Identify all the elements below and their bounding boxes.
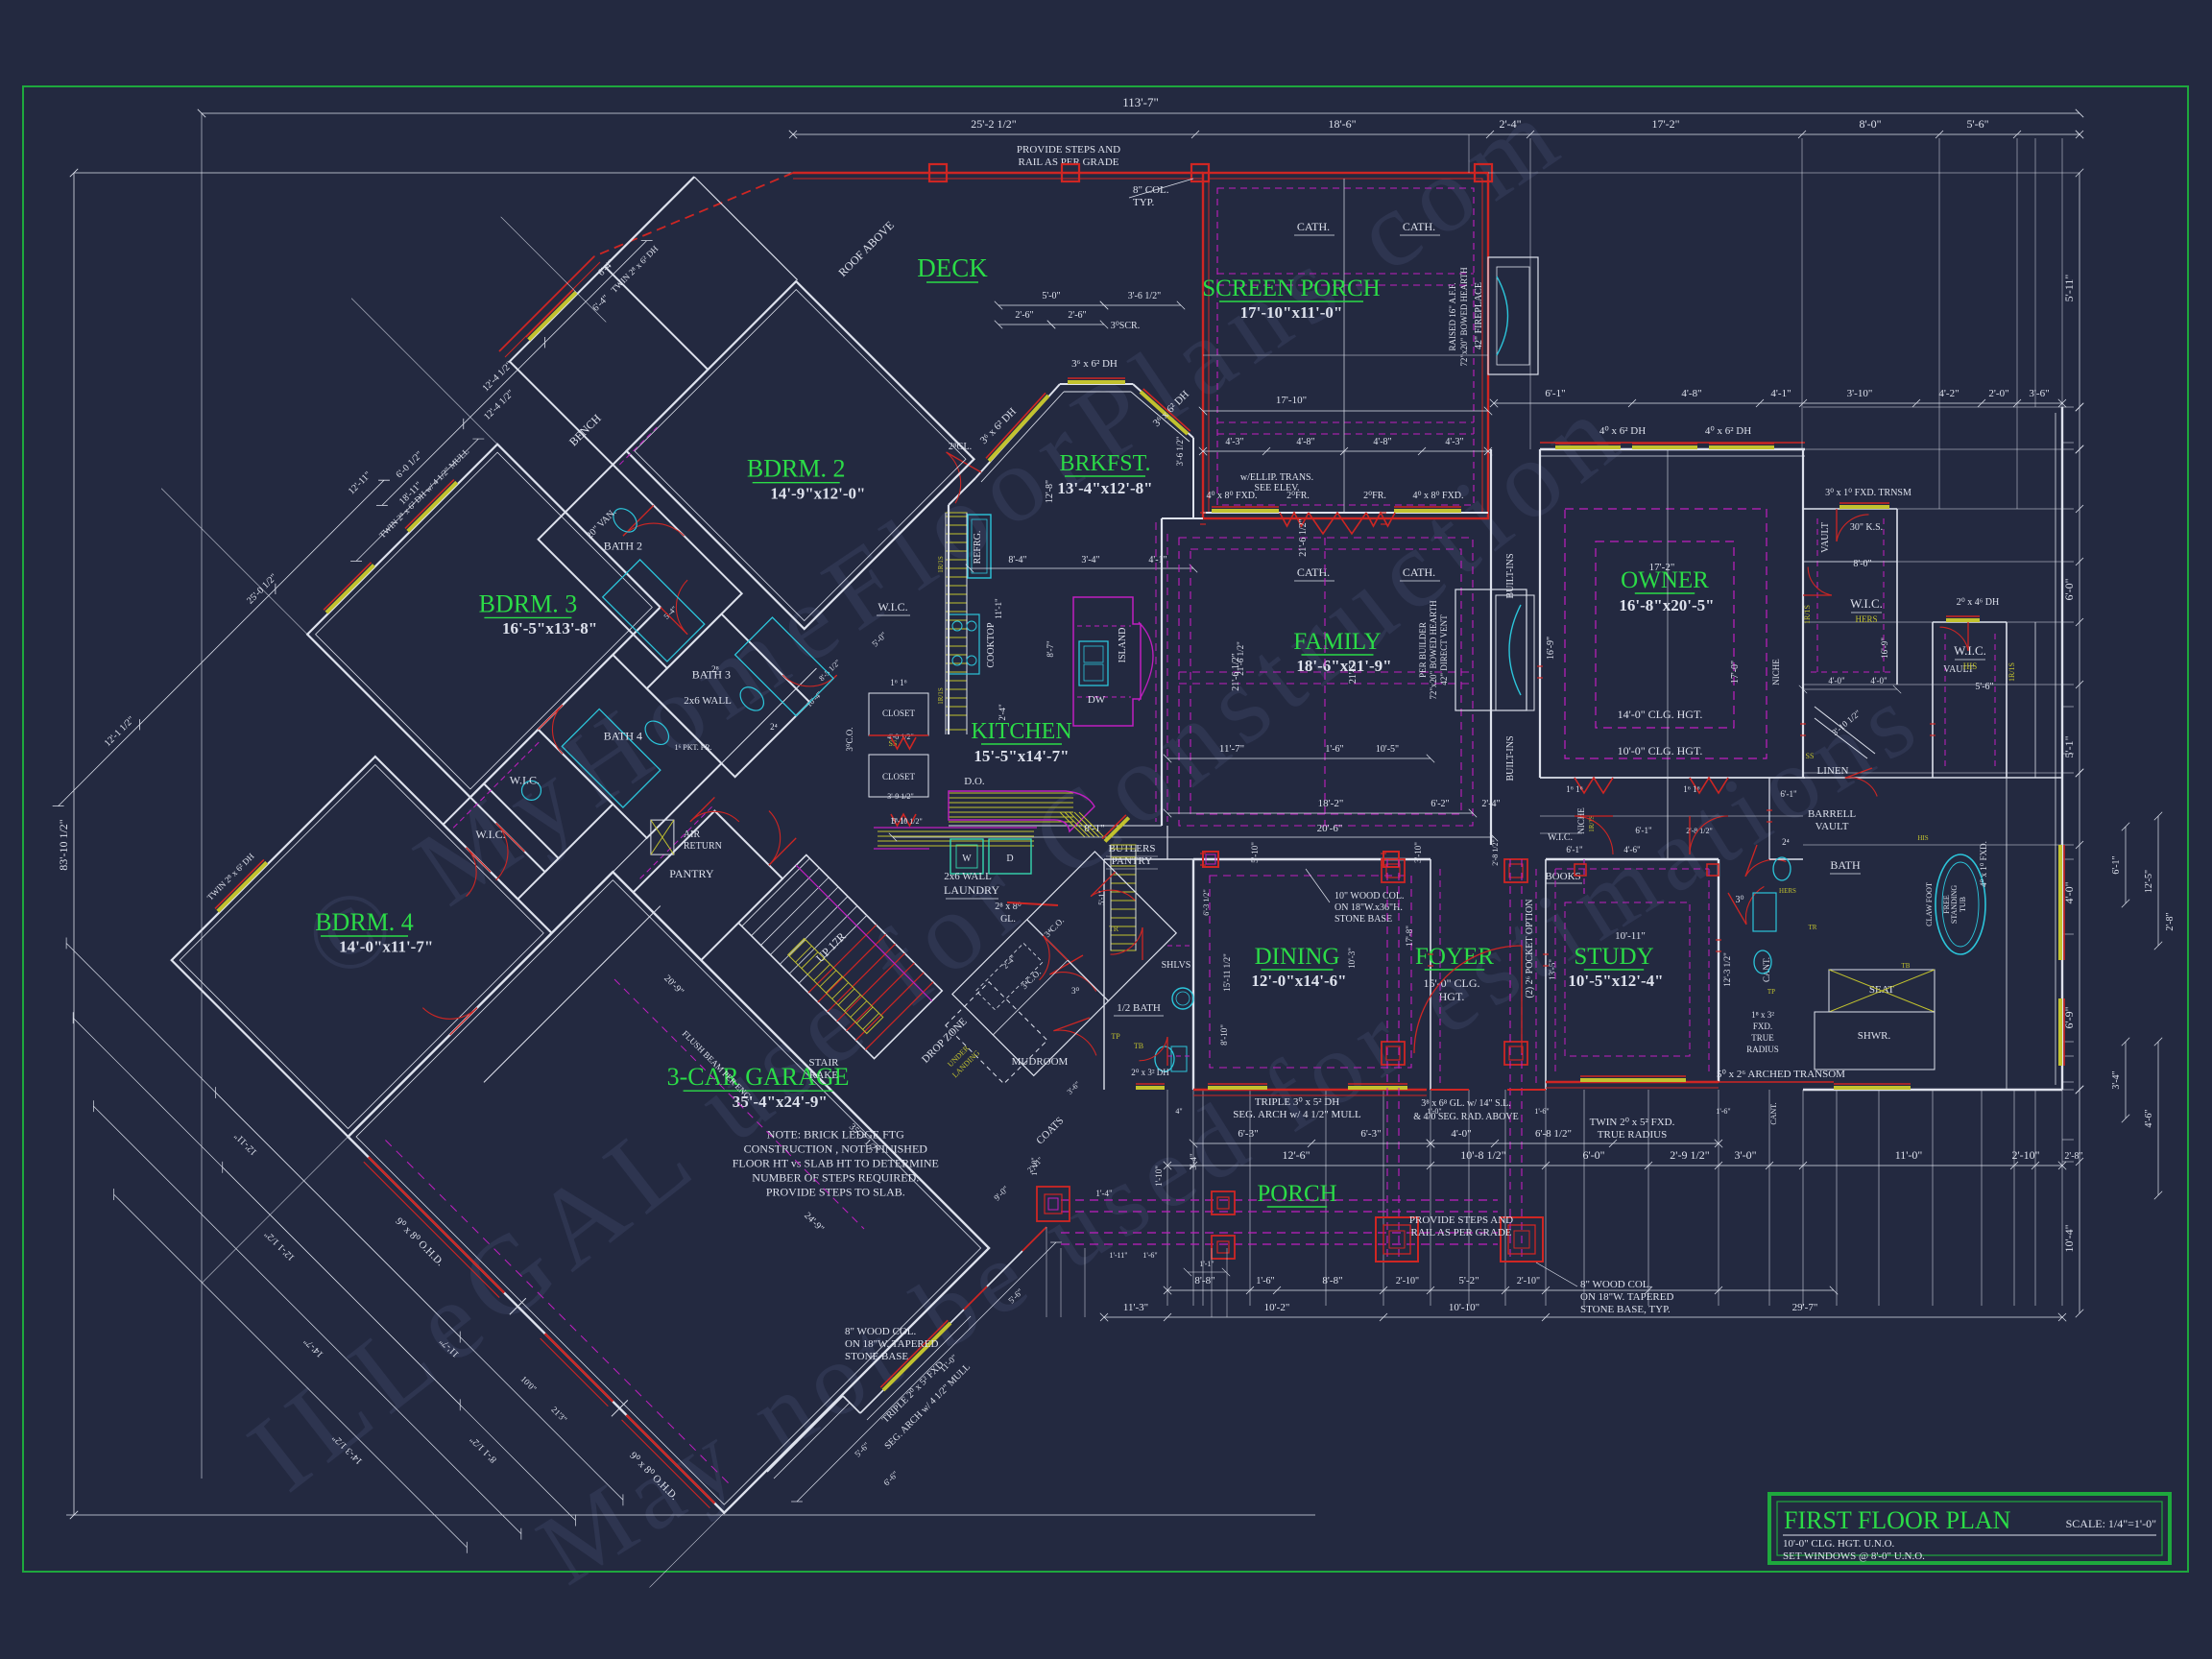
svg-text:4'-0": 4'-0" [1828, 676, 1845, 685]
svg-text:1'-6": 1'-6" [1716, 1107, 1730, 1116]
svg-text:1'-10": 1'-10" [1154, 1166, 1164, 1187]
svg-text:17'-2": 17'-2" [1649, 562, 1675, 573]
svg-text:SET WINDOWS @ 8'-0" U.N.O.: SET WINDOWS @ 8'-0" U.N.O. [1783, 1551, 1925, 1562]
svg-text:1R/1S: 1R/1S [937, 556, 945, 573]
svg-text:113'-7": 113'-7" [1122, 95, 1159, 109]
svg-text:FLOOR HT vs SLAB HT TO DETERMI: FLOOR HT vs SLAB HT TO DETERMINE [733, 1156, 939, 1169]
svg-text:ON 18"W. TAPERED: ON 18"W. TAPERED [845, 1338, 938, 1350]
svg-text:3'-6 1/2": 3'-6 1/2" [1175, 436, 1185, 466]
svg-text:17'-8": 17'-8" [1405, 926, 1414, 947]
svg-text:2x6 WALL: 2x6 WALL [684, 695, 732, 707]
svg-text:10'-5"x12'-4": 10'-5"x12'-4" [1568, 972, 1663, 990]
svg-text:KITCHEN: KITCHEN [971, 719, 1071, 744]
svg-text:PORCH: PORCH [1257, 1181, 1336, 1207]
svg-text:3'-4": 3'-4" [1081, 555, 1099, 565]
svg-text:4'-6": 4'-6" [2144, 1109, 2154, 1127]
svg-text:1R/1S: 1R/1S [937, 687, 945, 705]
svg-text:3'-10": 3'-10" [1847, 388, 1873, 399]
svg-text:ON 18"W.x36"H.: ON 18"W.x36"H. [1334, 902, 1403, 913]
svg-text:BDRM. 2: BDRM. 2 [747, 455, 846, 483]
svg-text:3'-6 1/2": 3'-6 1/2" [1128, 291, 1162, 301]
svg-text:2'-4": 2'-4" [1481, 799, 1500, 809]
svg-text:CANT.: CANT. [1769, 1102, 1778, 1124]
svg-text:SHLVS: SHLVS [1162, 960, 1191, 971]
svg-text:TR: TR [1809, 924, 1817, 931]
svg-text:13'-4"x12'-8": 13'-4"x12'-8" [1057, 479, 1152, 497]
svg-text:5'-11": 5'-11" [2062, 275, 2076, 302]
svg-text:4'-3": 4'-3" [1225, 437, 1243, 447]
svg-text:10'-4": 10'-4" [2062, 1224, 2076, 1252]
svg-text:BARRELL: BARRELL [1808, 808, 1856, 820]
svg-text:BUILT-INS: BUILT-INS [1505, 735, 1516, 781]
svg-text:29'-7": 29'-7" [1792, 1302, 1818, 1313]
svg-text:2x6 WALL: 2x6 WALL [944, 871, 992, 882]
svg-text:4'-0": 4'-0" [1870, 676, 1887, 685]
svg-text:2'-6": 2'-6" [1015, 310, 1033, 321]
svg-text:3⁶ x 6² DH: 3⁶ x 6² DH [1071, 358, 1118, 370]
svg-text:BATH 3: BATH 3 [692, 668, 731, 682]
svg-text:8" COL.: 8" COL. [1133, 184, 1169, 196]
svg-text:8" WOOD COL.: 8" WOOD COL. [1580, 1279, 1652, 1290]
svg-text:BATH 4: BATH 4 [604, 729, 642, 742]
svg-text:W.I.C.: W.I.C. [1850, 596, 1883, 611]
svg-text:6'-8 1/2": 6'-8 1/2" [1535, 1128, 1572, 1140]
svg-text:12'-8": 12'-8" [1045, 480, 1055, 503]
svg-text:3'-10": 3'-10" [1413, 842, 1423, 863]
svg-text:8'-1": 8'-1" [1084, 823, 1104, 834]
svg-text:TP: TP [1767, 988, 1775, 996]
svg-text:3⁰SCR.: 3⁰SCR. [1111, 321, 1140, 331]
svg-text:BOOKS: BOOKS [1545, 871, 1580, 882]
svg-text:4'-1": 4'-1" [1148, 555, 1166, 565]
svg-text:4'-1": 4'-1" [1770, 388, 1791, 399]
svg-text:42" DIRECT VENT: 42" DIRECT VENT [1439, 614, 1449, 685]
svg-text:RAIL AS PER GRADE: RAIL AS PER GRADE [1018, 156, 1118, 168]
svg-text:16'-5"x13'-8": 16'-5"x13'-8" [502, 619, 597, 637]
svg-text:1'-11": 1'-11" [1109, 1251, 1127, 1260]
svg-text:2⁰FR.: 2⁰FR. [1363, 491, 1386, 501]
svg-text:4'-2": 4'-2" [1938, 388, 1959, 399]
svg-text:CATH.: CATH. [1403, 565, 1435, 579]
svg-text:ISLAND: ISLAND [1118, 628, 1128, 663]
svg-text:RAKE: RAKE [809, 1070, 838, 1081]
svg-text:10'-10": 10'-10" [1449, 1302, 1479, 1313]
svg-text:18'-2": 18'-2" [1318, 798, 1344, 809]
svg-text:2'-10": 2'-10" [1396, 1276, 1419, 1286]
svg-text:6'-0": 6'-0" [2062, 578, 2076, 600]
svg-text:TB: TB [1134, 1042, 1143, 1050]
svg-text:17'-2": 17'-2" [1651, 117, 1679, 131]
svg-text:HGT.: HGT. [1439, 990, 1465, 1003]
svg-text:16'-8"x20'-5": 16'-8"x20'-5" [1619, 596, 1714, 614]
svg-text:1R/1S: 1R/1S [1588, 815, 1596, 832]
svg-text:D.O.: D.O. [964, 776, 985, 787]
svg-text:HIS: HIS [1917, 834, 1928, 842]
svg-text:8'-8": 8'-8" [1322, 1275, 1342, 1286]
svg-text:TB: TB [1902, 962, 1911, 970]
svg-text:8'-0": 8'-0" [1853, 559, 1871, 569]
svg-text:5'-6": 5'-6" [1975, 682, 1993, 692]
svg-text:STONE BASE, TYP.: STONE BASE, TYP. [1580, 1304, 1671, 1315]
svg-text:18'-6": 18'-6" [1328, 117, 1356, 131]
svg-text:FOYER: FOYER [1415, 944, 1494, 970]
svg-text:3'-9 1/2": 3'-9 1/2" [887, 792, 914, 801]
svg-text:83'-10 1/2": 83'-10 1/2" [57, 819, 70, 870]
svg-text:12'-5": 12'-5" [2144, 870, 2154, 893]
svg-text:SCALE: 1/4"=1'-0": SCALE: 1/4"=1'-0" [2066, 1517, 2156, 1530]
svg-text:11'-7": 11'-7" [1219, 743, 1244, 755]
svg-text:21'-5": 21'-5" [1348, 661, 1358, 684]
svg-text:TRUE RADIUS: TRUE RADIUS [1598, 1129, 1667, 1141]
svg-text:1'-0": 1'-0" [1427, 1107, 1441, 1116]
svg-text:W.I.C.: W.I.C. [475, 828, 505, 841]
svg-text:72"x20" BOWED HEARTH: 72"x20" BOWED HEARTH [1429, 600, 1438, 700]
svg-text:1/2 BATH: 1/2 BATH [1117, 1002, 1161, 1014]
svg-text:4'-8": 4'-8" [1681, 388, 1701, 399]
svg-text:W.I.C.: W.I.C. [1954, 643, 1986, 658]
svg-text:5'-10": 5'-10" [1250, 842, 1260, 863]
svg-text:W.I.C.: W.I.C. [1548, 832, 1573, 843]
svg-text:17'-0": 17'-0" [1730, 661, 1741, 684]
svg-text:20'-6": 20'-6" [1317, 823, 1343, 834]
svg-text:3'-4": 3'-4" [1189, 1153, 1198, 1170]
svg-text:VAULT: VAULT [1815, 821, 1849, 832]
svg-text:AIR: AIR [684, 829, 701, 840]
svg-text:ON 18"W. TAPERED: ON 18"W. TAPERED [1580, 1291, 1673, 1303]
svg-text:3⁰: 3⁰ [1071, 986, 1080, 996]
svg-text:14'-9"x12'-0": 14'-9"x12'-0" [770, 484, 865, 502]
svg-text:4⁰ x 6² DH: 4⁰ x 6² DH [1599, 425, 1646, 437]
svg-text:SHWR.: SHWR. [1858, 1030, 1891, 1042]
svg-text:1'-4": 1'-4" [1095, 1189, 1113, 1198]
svg-text:12'-0"x14'-6": 12'-0"x14'-6" [1251, 972, 1346, 990]
svg-text:3⁰: 3⁰ [1735, 895, 1743, 905]
svg-text:2⁴: 2⁴ [1782, 837, 1790, 847]
svg-text:2'-10": 2'-10" [1517, 1276, 1540, 1286]
svg-text:8'-8": 8'-8" [1194, 1275, 1214, 1286]
svg-text:CONSTRUCTION , NOTE FINISHED: CONSTRUCTION , NOTE FINISHED [744, 1142, 928, 1155]
svg-text:CLAW FOOT: CLAW FOOT [1925, 882, 1934, 926]
svg-text:15'-0" CLG.: 15'-0" CLG. [1423, 976, 1479, 990]
svg-text:12'-3 1/2": 12'-3 1/2" [1722, 952, 1732, 987]
svg-text:HIS: HIS [1963, 661, 1978, 671]
svg-text:4'-0": 4'-0" [1451, 1128, 1471, 1140]
svg-text:VAULT: VAULT [1820, 522, 1831, 553]
svg-text:SCREEN PORCH: SCREEN PORCH [1202, 276, 1380, 301]
svg-text:1'-1": 1'-1" [1199, 1260, 1214, 1268]
svg-text:10'-0" CLG. HGT. U.N.O.: 10'-0" CLG. HGT. U.N.O. [1783, 1538, 1895, 1550]
svg-text:6'-2": 6'-2" [1431, 799, 1449, 809]
svg-text:1R/1S: 1R/1S [2008, 662, 2016, 682]
svg-text:STONE BASE: STONE BASE [1334, 914, 1392, 925]
svg-text:LAUNDRY: LAUNDRY [944, 883, 999, 897]
svg-text:W.I.C.: W.I.C. [510, 773, 540, 786]
svg-text:CLOSET: CLOSET [882, 772, 916, 781]
svg-text:NUMBER OF STEPS REQUIRED.: NUMBER OF STEPS REQUIRED. [752, 1170, 919, 1184]
svg-text:CATH.: CATH. [1403, 220, 1435, 233]
svg-text:NOTE: BRICK LEDGE FTG: NOTE: BRICK LEDGE FTG [767, 1127, 904, 1141]
svg-text:5'-6": 5'-6" [1966, 117, 1988, 131]
svg-text:42" FIREPLACE: 42" FIREPLACE [1474, 282, 1484, 349]
svg-text:6'-1": 6'-1" [1545, 388, 1565, 399]
svg-text:BUILT-INS: BUILT-INS [1505, 553, 1516, 598]
svg-text:4'-6": 4'-6" [1623, 845, 1641, 854]
svg-text:6'-1": 6'-1" [1566, 845, 1583, 854]
svg-text:BDRM. 3: BDRM. 3 [479, 589, 578, 617]
svg-text:2⁰ x 4⁶ DH: 2⁰ x 4⁶ DH [1957, 597, 1999, 608]
svg-text:8'-0": 8'-0" [1859, 117, 1881, 131]
svg-text:W.I.C.: W.I.C. [878, 600, 907, 613]
svg-text:11'-3": 11'-3" [1123, 1302, 1148, 1313]
svg-text:w/ELLIP. TRANS.: w/ELLIP. TRANS. [1240, 472, 1313, 483]
svg-text:TUB: TUB [1959, 897, 1967, 912]
svg-text:BDRM. 4: BDRM. 4 [315, 908, 414, 936]
svg-text:6'-1": 6'-1" [1635, 826, 1652, 835]
svg-text:1⁶ 1⁶: 1⁶ 1⁶ [1683, 784, 1700, 794]
svg-text:21'-6 1/2": 21'-6 1/2" [1236, 641, 1245, 676]
svg-text:2'-4": 2'-4" [1499, 117, 1521, 131]
svg-text:PROVIDE STEPS AND: PROVIDE STEPS AND [1409, 1214, 1513, 1226]
svg-text:2⁸GL.: 2⁸GL. [949, 442, 972, 452]
svg-text:CANT.: CANT. [1762, 957, 1771, 982]
svg-text:SEG. ARCH w/ 4 1/2" MULL: SEG. ARCH w/ 4 1/2" MULL [1233, 1109, 1361, 1120]
svg-text:4'-0 1/2": 4'-0 1/2" [887, 733, 914, 741]
svg-text:HERS: HERS [1855, 614, 1877, 624]
svg-text:FAMILY: FAMILY [1293, 629, 1381, 655]
svg-text:REFRG.: REFRG. [973, 531, 983, 565]
svg-text:1'-6": 1'-6" [1142, 1251, 1157, 1260]
svg-text:8'-10": 8'-10" [1219, 1024, 1229, 1046]
svg-text:NICHE: NICHE [1576, 807, 1586, 834]
svg-text:10'-5": 10'-5" [1376, 744, 1399, 755]
svg-text:SEE ELEV.: SEE ELEV. [1254, 483, 1299, 493]
svg-text:10'-0" CLG. HGT.: 10'-0" CLG. HGT. [1618, 744, 1703, 757]
svg-text:10'-8 1/2": 10'-8 1/2" [1460, 1148, 1505, 1162]
svg-text:17'-10": 17'-10" [1276, 395, 1307, 406]
svg-text:8'-4": 8'-4" [1008, 555, 1026, 565]
svg-text:5⁰ x 2⁶ ARCHED TRANSOM: 5⁰ x 2⁶ ARCHED TRANSOM [1717, 1069, 1845, 1080]
svg-text:STONE BASE: STONE BASE [845, 1351, 908, 1362]
svg-text:14'-0" CLG. HGT.: 14'-0" CLG. HGT. [1618, 708, 1703, 721]
svg-text:8'-7": 8'-7" [1046, 640, 1055, 658]
svg-text:2'-6": 2'-6" [1068, 310, 1086, 321]
svg-text:2'-8 1/2": 2'-8 1/2" [1491, 839, 1500, 866]
svg-text:25'-2 1/2": 25'-2 1/2" [971, 117, 1016, 131]
svg-text:3'-6": 3'-6" [2029, 388, 2049, 399]
svg-text:2⁴: 2⁴ [770, 722, 778, 732]
svg-text:2'-8": 2'-8" [2064, 1151, 2082, 1162]
svg-text:4⁰ x 6² DH: 4⁰ x 6² DH [1705, 425, 1751, 437]
svg-text:5'-10 1/2": 5'-10 1/2" [892, 817, 923, 826]
svg-text:4⁰ x 1⁰ FXD.: 4⁰ x 1⁰ FXD. [1979, 841, 1988, 887]
svg-text:CLOSET: CLOSET [882, 709, 916, 718]
svg-text:16'-9": 16'-9" [1546, 637, 1556, 660]
svg-text:CATH.: CATH. [1297, 220, 1330, 233]
svg-text:6'-3": 6'-3" [1360, 1128, 1381, 1140]
svg-text:STANDING: STANDING [1950, 885, 1959, 924]
svg-text:6'-3": 6'-3" [1238, 1128, 1258, 1140]
svg-text:RAIL AS PER GRADE: RAIL AS PER GRADE [1410, 1227, 1511, 1238]
svg-text:5'-2": 5'-2" [1458, 1275, 1479, 1286]
svg-text:BATH: BATH [1830, 858, 1861, 872]
svg-text:3⁰C.O.: 3⁰C.O. [845, 727, 854, 751]
svg-text:W: W [962, 854, 972, 864]
svg-text:1R/1S: 1R/1S [1803, 605, 1812, 624]
svg-text:RETURN: RETURN [684, 841, 722, 852]
svg-text:4⁰ x 8⁰ FXD.: 4⁰ x 8⁰ FXD. [1412, 491, 1463, 501]
svg-text:PROVIDE STEPS AND: PROVIDE STEPS AND [1017, 144, 1120, 156]
svg-text:6'-0": 6'-0" [1582, 1148, 1604, 1162]
svg-text:1⁸ x 3²: 1⁸ x 3² [1751, 1010, 1774, 1020]
svg-text:HERS: HERS [1779, 887, 1796, 895]
svg-text:1⁶ 1⁶: 1⁶ 1⁶ [1566, 784, 1583, 794]
svg-text:STAIR: STAIR [809, 1057, 840, 1069]
svg-text:FXD.: FXD. [1753, 1022, 1772, 1031]
svg-text:1'-10": 1'-10" [1030, 1157, 1039, 1175]
svg-text:TWIN 2⁰ x 5² FXD.: TWIN 2⁰ x 5² FXD. [1590, 1117, 1675, 1128]
svg-text:1⁶ PKT. FR.: 1⁶ PKT. FR. [674, 743, 711, 752]
svg-text:RAISED 16" A.F.F.: RAISED 16" A.F.F. [1448, 283, 1457, 351]
svg-text:TRUE: TRUE [1751, 1033, 1774, 1043]
svg-text:TRIPLE 3⁰ x 5² DH: TRIPLE 3⁰ x 5² DH [1255, 1096, 1339, 1108]
svg-text:14'-0"x11'-7": 14'-0"x11'-7" [339, 938, 433, 956]
svg-text:2⁰ x 3² DH: 2⁰ x 3² DH [1131, 1068, 1169, 1077]
svg-text:GL.: GL. [1000, 914, 1016, 925]
svg-text:10'-2": 10'-2" [1264, 1302, 1290, 1313]
svg-text:NICHE: NICHE [1771, 659, 1781, 685]
svg-text:PANTRY: PANTRY [669, 867, 714, 880]
svg-text:1'-6": 1'-6" [1325, 744, 1343, 755]
svg-text:15'-11 1/2": 15'-11 1/2" [1222, 953, 1232, 992]
svg-text:DW: DW [1088, 694, 1106, 706]
svg-text:12'-6": 12'-6" [1282, 1148, 1310, 1162]
svg-text:8" WOOD COL.: 8" WOOD COL. [845, 1326, 917, 1337]
svg-text:4'-3": 4'-3" [1445, 437, 1463, 447]
svg-text:10" WOOD COL.: 10" WOOD COL. [1334, 891, 1405, 902]
svg-text:15'-5"x14'-7": 15'-5"x14'-7" [974, 747, 1069, 765]
svg-text:1'-6": 1'-6" [1534, 1107, 1549, 1116]
svg-text:2'-9 1/2": 2'-9 1/2" [1670, 1148, 1709, 1162]
svg-text:RADIUS: RADIUS [1746, 1045, 1779, 1054]
svg-text:3'-4": 3'-4" [2111, 1070, 2122, 1089]
svg-text:17'-10"x11'-0": 17'-10"x11'-0" [1240, 303, 1343, 322]
svg-text:16'-9": 16'-9" [1880, 637, 1889, 659]
svg-text:COOKTOP: COOKTOP [986, 622, 997, 667]
svg-text:(2) 2⁶ POCKET OPTION: (2) 2⁶ POCKET OPTION [1525, 899, 1535, 998]
svg-text:LINEN: LINEN [1817, 765, 1849, 777]
svg-text:DECK: DECK [917, 253, 988, 282]
svg-text:DINING: DINING [1255, 944, 1340, 970]
svg-text:2'-10": 2'-10" [2011, 1148, 2039, 1162]
svg-text:11'-0": 11'-0" [1895, 1148, 1923, 1162]
svg-text:BATH 2: BATH 2 [604, 539, 642, 552]
svg-text:3⁰ x 1⁰ FXD. TRNSM: 3⁰ x 1⁰ FXD. TRNSM [1825, 488, 1911, 498]
svg-text:BRKFST.: BRKFST. [1060, 451, 1151, 476]
svg-text:TYP.: TYP. [1133, 197, 1155, 208]
svg-text:5'-0": 5'-0" [1042, 291, 1060, 301]
svg-text:4⁰ x 8⁰ FXD.: 4⁰ x 8⁰ FXD. [1206, 491, 1257, 501]
svg-text:2'-4": 2'-4" [998, 704, 1007, 721]
svg-text:2'-8": 2'-8" [2165, 912, 2176, 930]
svg-text:10'-3": 10'-3" [1347, 948, 1357, 969]
svg-text:TP: TP [1111, 1032, 1120, 1041]
svg-text:SS: SS [1806, 752, 1815, 760]
svg-text:6'-1": 6'-1" [2111, 855, 2122, 874]
svg-text:30" K.S.: 30" K.S. [1850, 522, 1883, 533]
svg-text:4": 4" [1175, 1107, 1182, 1116]
svg-text:72"x20" BOWED HEARTH: 72"x20" BOWED HEARTH [1459, 267, 1469, 367]
svg-text:1'-6": 1'-6" [1256, 1276, 1274, 1286]
svg-text:6'-1": 6'-1" [1780, 789, 1797, 799]
svg-text:4'-8": 4'-8" [1296, 437, 1314, 447]
svg-text:1⁶ 1⁶: 1⁶ 1⁶ [890, 678, 907, 687]
svg-text:11'-1": 11'-1" [994, 598, 1003, 619]
svg-text:D: D [1006, 854, 1013, 864]
svg-text:4'-8": 4'-8" [1373, 437, 1391, 447]
svg-text:3'-0": 3'-0" [1734, 1148, 1756, 1162]
svg-text:2'-0": 2'-0" [1988, 388, 2008, 399]
svg-text:PROVIDE STEPS TO SLAB.: PROVIDE STEPS TO SLAB. [766, 1185, 905, 1198]
svg-text:FIRST FLOOR PLAN: FIRST FLOOR PLAN [1784, 1506, 2011, 1534]
svg-text:6'-3 1/2": 6'-3 1/2" [1202, 889, 1211, 916]
svg-text:PER BUILDER: PER BUILDER [1418, 622, 1428, 678]
svg-text:10'-11": 10'-11" [1615, 930, 1646, 942]
svg-text:21'-6 1/2": 21'-6 1/2" [1298, 518, 1309, 557]
svg-text:STUDY: STUDY [1574, 944, 1653, 970]
svg-text:5'-1": 5'-1" [2062, 735, 2076, 757]
